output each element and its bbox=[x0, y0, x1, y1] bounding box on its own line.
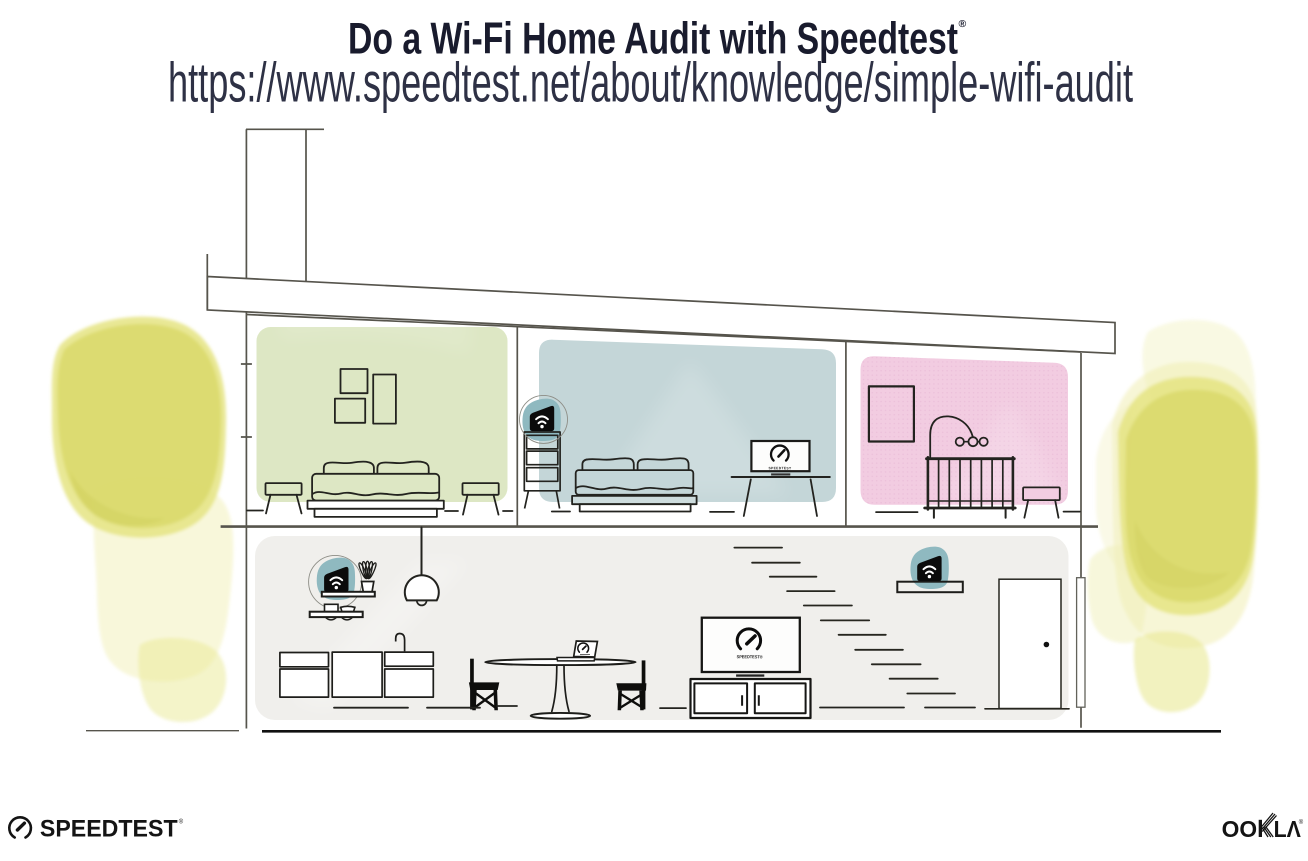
svg-text:OO: OO bbox=[1222, 816, 1258, 842]
svg-text:®: ® bbox=[1299, 819, 1304, 826]
svg-text:SPEEDTEST: SPEEDTEST bbox=[768, 466, 792, 470]
svg-text:LΛ: LΛ bbox=[1274, 816, 1301, 842]
svg-text:SPEEDTEST: SPEEDTEST bbox=[40, 816, 178, 843]
svg-text:https://www.speedtest.net/abou: https://www.speedtest.net/about/knowledg… bbox=[168, 51, 1133, 114]
svg-text:SPEEDTEST®: SPEEDTEST® bbox=[737, 654, 764, 659]
svg-text:®: ® bbox=[959, 18, 967, 30]
svg-text:®: ® bbox=[179, 819, 184, 826]
